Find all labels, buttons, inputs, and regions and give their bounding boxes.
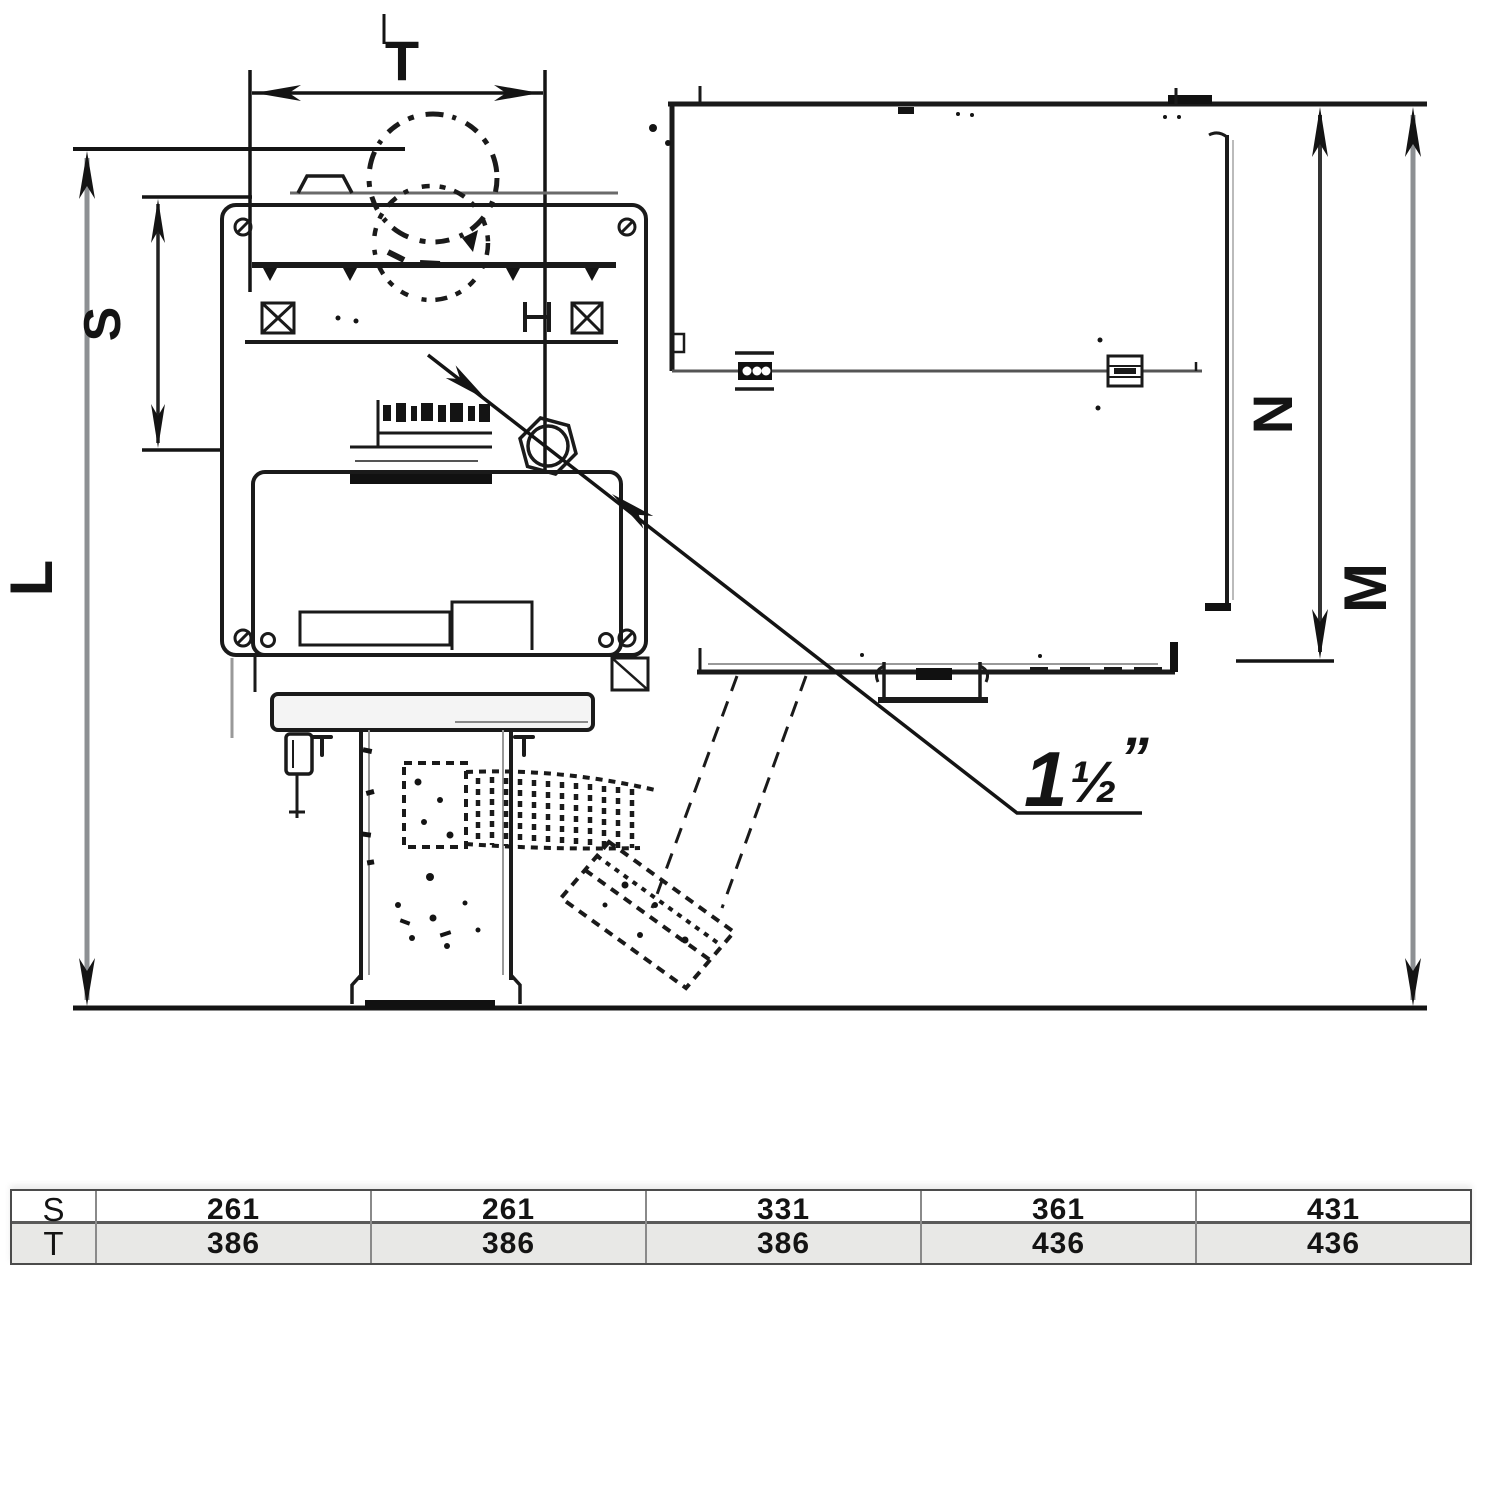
table-cell: 386 <box>370 1224 645 1263</box>
flange-bolt <box>286 734 312 818</box>
dimension-n: N <box>1236 107 1334 661</box>
gas-hose <box>404 763 655 849</box>
dim-label-s: S <box>74 307 132 342</box>
table-row-s: S 261 261 331 361 431 <box>12 1191 1470 1221</box>
table-cell: 386 <box>95 1224 370 1263</box>
dim-label-n: N <box>1241 394 1304 434</box>
technical-drawing: L S T N M <box>0 0 1500 1210</box>
mounting-flange <box>272 694 593 730</box>
dim-label-m: M <box>1332 563 1399 613</box>
table-row-t: T 386 386 386 436 436 <box>12 1221 1470 1263</box>
foot-bracket <box>876 662 988 700</box>
front-view <box>222 114 806 1009</box>
table-cell: 436 <box>920 1224 1195 1263</box>
side-view <box>649 86 1427 700</box>
hinge-icon <box>735 353 774 389</box>
gas-valve <box>561 842 734 988</box>
connection-size-label: 1½” <box>1024 726 1149 823</box>
row-label-t: T <box>12 1224 95 1263</box>
control-box <box>253 472 621 655</box>
dim-label-l: L <box>0 560 65 597</box>
table-cell: 386 <box>645 1224 920 1263</box>
dimension-s: S <box>74 197 252 450</box>
label-glyphs <box>262 302 602 333</box>
band-ticks <box>263 268 599 281</box>
dimension-t: T <box>250 14 545 470</box>
table-cell: 436 <box>1195 1224 1470 1263</box>
backplate <box>222 205 646 655</box>
dimension-m: M <box>1332 107 1421 1006</box>
projection-lines <box>652 676 806 908</box>
dimension-l: L <box>0 149 405 1006</box>
connection-callout: 1½” <box>428 355 1149 823</box>
latch-icon <box>1108 356 1142 386</box>
dim-label-t: T <box>385 29 419 92</box>
dimension-table: S 261 261 331 361 431 T 386 386 386 436 … <box>10 1189 1472 1265</box>
